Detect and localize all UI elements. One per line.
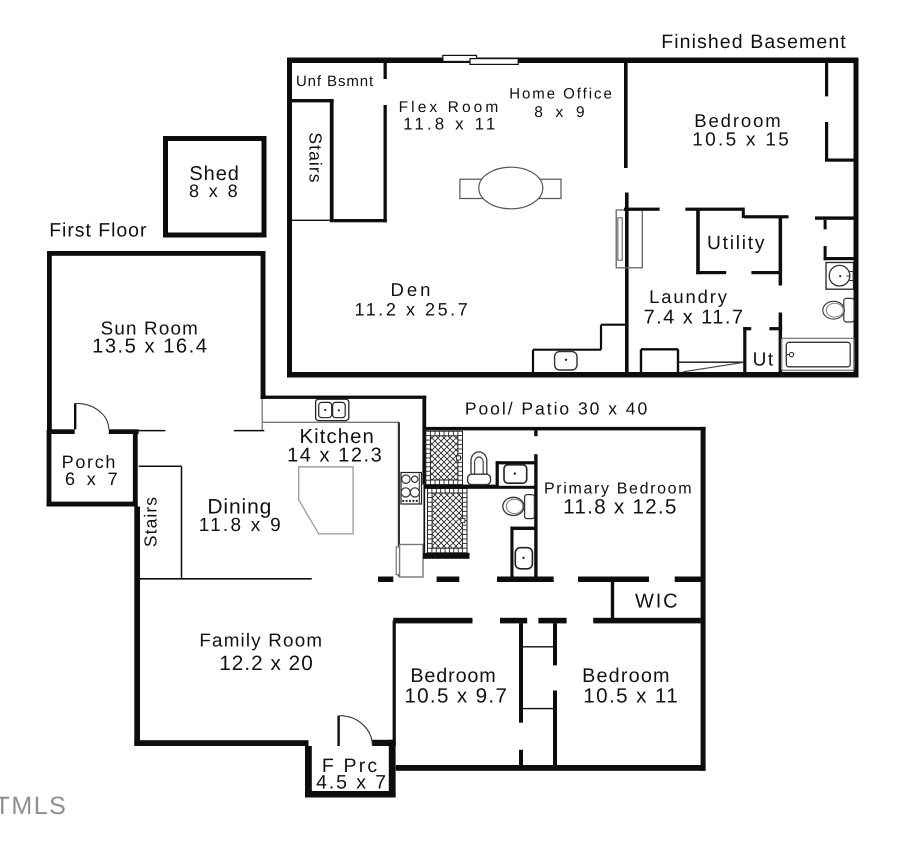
svg-text:Laundry: Laundry xyxy=(649,286,729,307)
svg-text:11.8 x 9: 11.8 x 9 xyxy=(199,515,283,536)
svg-text:Pool/ Patio 30 x 40: Pool/ Patio 30 x 40 xyxy=(465,399,649,419)
svg-text:Stairs: Stairs xyxy=(141,496,161,547)
svg-text:TMLS: TMLS xyxy=(0,792,67,820)
svg-text:Den: Den xyxy=(391,279,434,300)
svg-text:8 x 8: 8 x 8 xyxy=(189,181,240,201)
svg-text:Unf Bsmnt: Unf Bsmnt xyxy=(296,73,374,90)
svg-text:12.2 x 20: 12.2 x 20 xyxy=(219,652,314,675)
svg-text:Home Office: Home Office xyxy=(509,86,614,103)
svg-text:6 x 7: 6 x 7 xyxy=(65,469,121,489)
svg-text:Ut: Ut xyxy=(753,349,775,370)
svg-text:Stairs: Stairs xyxy=(306,132,326,183)
svg-text:8 x 9: 8 x 9 xyxy=(534,104,589,121)
svg-text:10.5 x 15: 10.5 x 15 xyxy=(692,130,791,151)
svg-text:10.5 x 9.7: 10.5 x 9.7 xyxy=(404,684,508,707)
svg-text:Family Room: Family Room xyxy=(199,630,323,651)
svg-text:13.5 x 16.4: 13.5 x 16.4 xyxy=(92,335,208,357)
svg-text:10.5 x 11: 10.5 x 11 xyxy=(583,684,679,707)
svg-text:14 x 12.3: 14 x 12.3 xyxy=(287,445,383,467)
svg-text:Finished Basement: Finished Basement xyxy=(661,31,847,53)
svg-text:Utility: Utility xyxy=(707,233,766,254)
svg-text:11.8 x 11: 11.8 x 11 xyxy=(403,114,498,133)
svg-text:4.5 x 7: 4.5 x 7 xyxy=(316,771,388,793)
svg-text:Bedroom: Bedroom xyxy=(694,110,782,131)
svg-text:First Floor: First Floor xyxy=(49,219,147,241)
svg-text:11.2 x 25.7: 11.2 x 25.7 xyxy=(355,300,471,320)
svg-text:11.8 x 12.5: 11.8 x 12.5 xyxy=(563,496,678,519)
svg-text:WIC: WIC xyxy=(635,591,679,613)
svg-text:7.4 x 11.7: 7.4 x 11.7 xyxy=(644,307,745,329)
